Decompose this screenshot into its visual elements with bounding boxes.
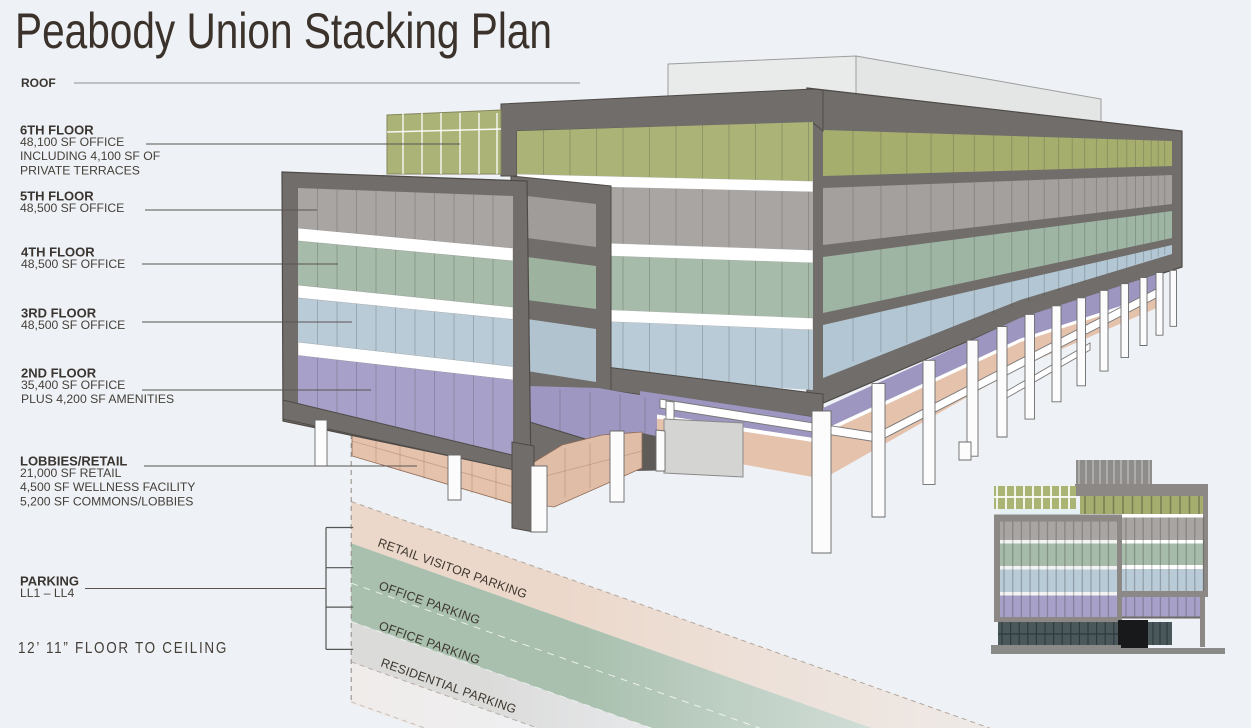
svg-text:48,500 SF OFFICE: 48,500 SF OFFICE xyxy=(21,257,125,271)
svg-text:ROOF: ROOF xyxy=(21,76,56,90)
svg-text:12’ 11” FLOOR TO CEILING: 12’ 11” FLOOR TO CEILING xyxy=(18,640,228,657)
svg-text:PLUS 4,200 SF AMENITIES: PLUS 4,200 SF AMENITIES xyxy=(21,392,174,406)
svg-text:LL1 – LL4: LL1 – LL4 xyxy=(20,586,74,600)
svg-text:35,400 SF OFFICE: 35,400 SF OFFICE xyxy=(21,378,125,392)
svg-text:21,000 SF RETAIL: 21,000 SF RETAIL xyxy=(20,466,122,480)
svg-text:PRIVATE TERRACES: PRIVATE TERRACES xyxy=(20,163,140,177)
svg-text:48,500 SF OFFICE: 48,500 SF OFFICE xyxy=(20,201,124,215)
svg-text:48,500 SF OFFICE: 48,500 SF OFFICE xyxy=(21,318,125,332)
svg-text:Peabody Union Stacking Plan: Peabody Union Stacking Plan xyxy=(15,3,552,59)
svg-text:48,100 SF OFFICE: 48,100 SF OFFICE xyxy=(20,135,124,149)
svg-text:INCLUDING 4,100 SF OF: INCLUDING 4,100 SF OF xyxy=(20,149,160,163)
svg-text:4,500 SF WELLNESS FACILITY: 4,500 SF WELLNESS FACILITY xyxy=(20,480,195,494)
svg-text:5,200 SF COMMONS/LOBBIES: 5,200 SF COMMONS/LOBBIES xyxy=(20,494,193,508)
